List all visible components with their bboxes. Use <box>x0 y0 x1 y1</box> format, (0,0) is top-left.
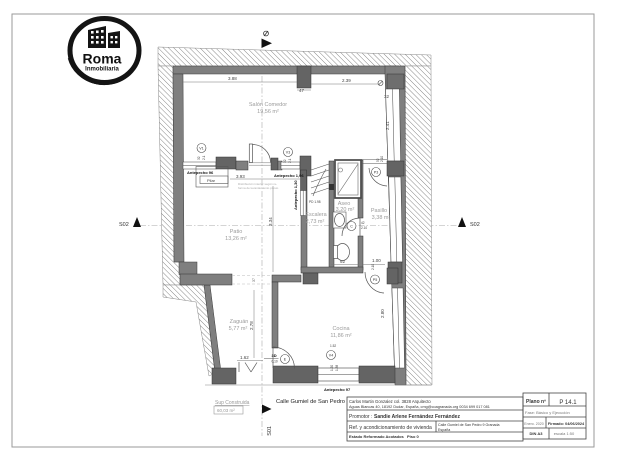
svg-text:escala 1:50: escala 1:50 <box>554 431 575 436</box>
svg-text:Patio: Patio <box>230 229 243 235</box>
svg-text:Inmobiliaria: Inmobiliaria <box>85 67 119 73</box>
svg-text:13,26 m²: 13,26 m² <box>225 236 247 242</box>
svg-text:Calle Gumiel de San Pedro: Calle Gumiel de San Pedro <box>276 399 345 405</box>
svg-text:1.62: 1.62 <box>240 355 249 360</box>
svg-text:2.78: 2.78 <box>249 321 254 330</box>
svg-text:Antepecho 97: Antepecho 97 <box>324 387 351 392</box>
svg-text:Pilar: Pilar <box>207 178 216 183</box>
svg-text:Antepecho 1,30: Antepecho 1,30 <box>293 180 298 210</box>
svg-text:V3: V3 <box>286 151 290 155</box>
svg-text:PD 1.98: PD 1.98 <box>309 200 321 204</box>
svg-text:37: 37 <box>252 278 256 282</box>
svg-text:P3: P3 <box>374 171 378 175</box>
svg-text:Zaguán: Zaguán <box>230 319 249 325</box>
svg-text:S01: S01 <box>267 426 273 436</box>
svg-text:2.80: 2.80 <box>380 309 385 318</box>
svg-text:Escalera: Escalera <box>305 212 327 218</box>
svg-text:V4: V4 <box>329 354 333 358</box>
svg-text:V1: V1 <box>199 147 203 151</box>
svg-text:1.38: 1.38 <box>335 365 339 371</box>
svg-text:32: 32 <box>197 156 201 160</box>
svg-text:S02: S02 <box>119 222 129 228</box>
svg-text:3.93: 3.93 <box>236 174 245 179</box>
svg-text:0,10: 0,10 <box>272 360 278 364</box>
svg-text:Ref. y acondicionamiento de vi: Ref. y acondicionamiento de vivienda <box>349 425 432 431</box>
svg-text:Enero. 2020: Enero. 2020 <box>524 422 544 426</box>
svg-text:32: 32 <box>283 159 287 163</box>
svg-text:2.10: 2.10 <box>380 156 384 162</box>
svg-text:S02: S02 <box>470 222 480 228</box>
svg-text:32: 32 <box>384 94 390 99</box>
svg-text:3D: 3D <box>272 353 277 358</box>
svg-text:5,77 m²: 5,77 m² <box>229 326 248 332</box>
svg-text:Fase: Básico y Ejecución: Fase: Básico y Ejecución <box>525 410 570 415</box>
svg-text:2.1: 2.1 <box>288 158 292 163</box>
svg-text:Antepecho 96: Antepecho 96 <box>187 170 214 175</box>
svg-text:Sandie Arlene Fernández Ferná: Sandie Arlene Fernández Fernández <box>374 414 460 420</box>
svg-text:P5: P5 <box>373 278 377 282</box>
svg-text:DIN A3: DIN A3 <box>530 431 544 436</box>
svg-text:11,86 m²: 11,86 m² <box>330 333 351 339</box>
svg-text:Salón Comedor: Salón Comedor <box>249 102 287 108</box>
svg-text:2.10: 2.10 <box>361 226 367 230</box>
svg-text:19,56 m²: 19,56 m² <box>257 109 279 115</box>
svg-text:3.88: 3.88 <box>228 76 237 81</box>
svg-text:2.39: 2.39 <box>342 78 351 83</box>
svg-text:92: 92 <box>340 259 346 264</box>
svg-text:Carlos Martin Gonzalez col. 38: Carlos Martin Gonzalez col. 3828 Arquite… <box>349 399 431 404</box>
svg-text:3,38 m²: 3,38 m² <box>372 215 391 221</box>
svg-text:Piso 0: Piso 0 <box>407 434 420 439</box>
svg-text:3,20 m²: 3,20 m² <box>336 207 355 213</box>
svg-text:1.52: 1.52 <box>330 344 336 348</box>
svg-text:España: España <box>438 428 450 432</box>
svg-text:2.1: 2.1 <box>202 155 206 160</box>
svg-text:47: 47 <box>299 88 305 93</box>
svg-text:P 14.1: P 14.1 <box>559 400 577 406</box>
svg-text:Calle Gumiel de San Pedro 9 Gr: Calle Gumiel de San Pedro 9 Granada <box>438 423 500 427</box>
svg-text:Firmado: 04/06/2024: Firmado: 04/06/2024 <box>548 422 585 426</box>
svg-text:Roma: Roma <box>83 51 122 67</box>
svg-text:C: C <box>350 225 353 229</box>
svg-text:Promotor :: Promotor : <box>349 414 372 420</box>
svg-text:Cocina: Cocina <box>332 326 350 332</box>
svg-text:Pasillo: Pasillo <box>371 208 387 214</box>
svg-text:42: 42 <box>361 221 365 225</box>
svg-text:Antepecho 1,06: Antepecho 1,06 <box>274 173 304 178</box>
svg-text:Plano nº: Plano nº <box>526 399 546 405</box>
svg-text:1.20: 1.20 <box>330 365 334 371</box>
svg-text:Aguas Blancas 40, 18192 Dudar,: Aguas Blancas 40, 18192 Dudar, España, c… <box>349 405 490 409</box>
svg-text:Estado Reformado Acotados: Estado Reformado Acotados <box>349 434 405 439</box>
svg-text:2,73 m²: 2,73 m² <box>306 219 325 225</box>
svg-text:forma de levantamiento previo: forma de levantamiento previo <box>238 186 279 190</box>
svg-text:2.41: 2.41 <box>385 121 390 130</box>
svg-text:3.34: 3.34 <box>268 217 273 226</box>
svg-text:Sup Construida: Sup Construida <box>215 400 250 406</box>
svg-text:2.10: 2.10 <box>371 264 375 270</box>
svg-text:1.00: 1.00 <box>372 258 381 263</box>
svg-text:60,03 m²: 60,03 m² <box>217 408 235 413</box>
